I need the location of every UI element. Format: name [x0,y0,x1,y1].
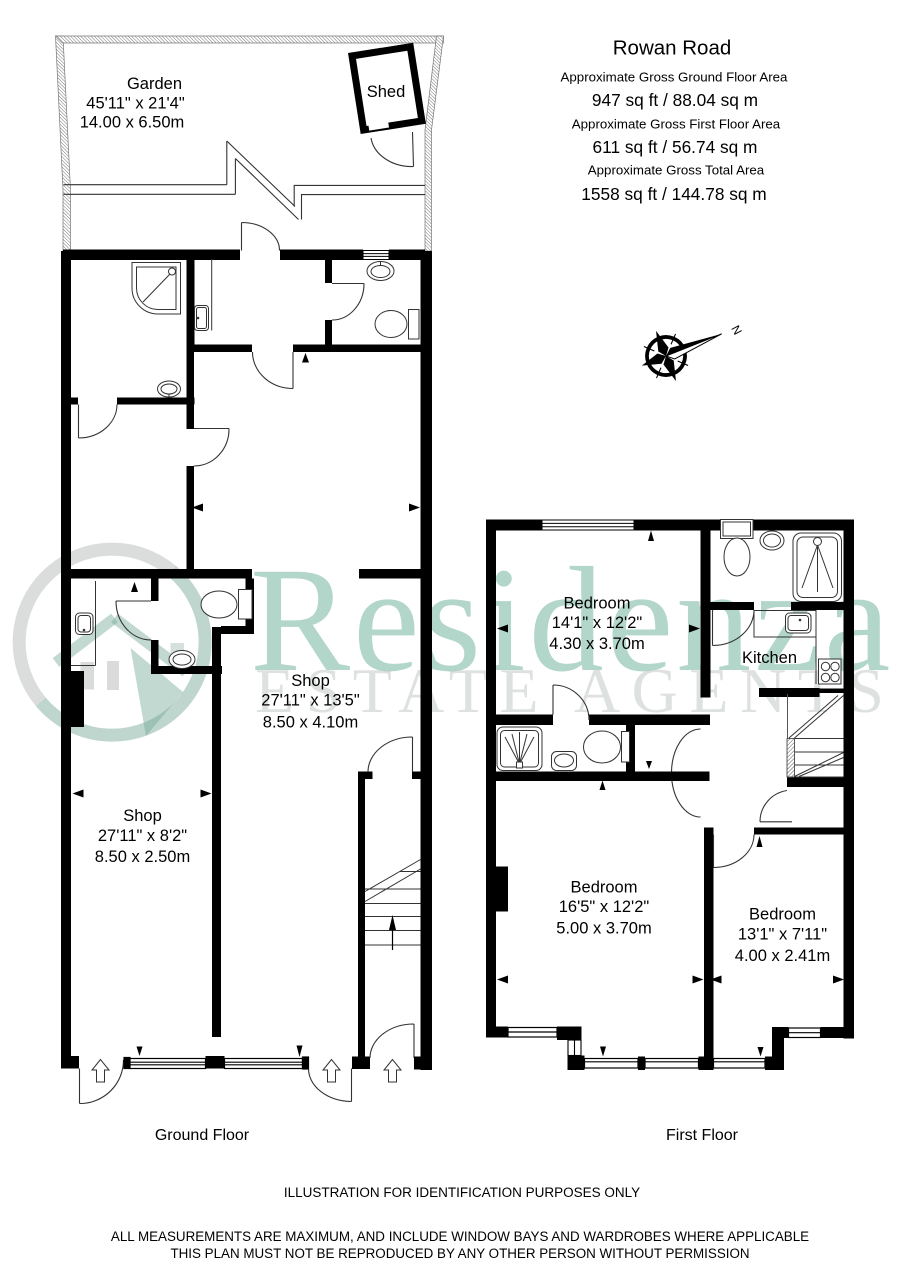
svg-text:Bedroom: Bedroom [571,879,638,897]
svg-text:27'11" x 13'5": 27'11" x 13'5" [261,692,360,710]
svg-text:5.00 x 3.70m: 5.00 x 3.70m [556,920,651,938]
svg-text:Bedroom: Bedroom [564,595,631,613]
svg-text:14.00 x 6.50m: 14.00 x 6.50m [80,114,185,132]
svg-text:1558 sq ft / 144.78 sq m: 1558 sq ft / 144.78 sq m [581,184,766,204]
svg-text:16'5" x 12'2": 16'5" x 12'2" [559,898,650,916]
svg-text:4.00 x 2.41m: 4.00 x 2.41m [735,947,830,965]
svg-text:ALL MEASUREMENTS ARE MAXIMUM,: ALL MEASUREMENTS ARE MAXIMUM, AND INCLUD… [111,1229,809,1244]
svg-text:611 sq ft / 56.74 sq m: 611 sq ft / 56.74 sq m [593,137,758,157]
svg-text:Kitchen: Kitchen [742,649,797,667]
svg-text:45'11" x 21'4": 45'11" x 21'4" [86,95,185,113]
svg-text:ILLUSTRATION FOR IDENTIFICATIO: ILLUSTRATION FOR IDENTIFICATION PURPOSES… [284,1185,640,1200]
svg-text:Approximate Gross Ground Floor: Approximate Gross Ground Floor Area [561,70,788,85]
svg-text:Shop: Shop [291,672,330,690]
svg-text:14'1" x 12'2": 14'1" x 12'2" [552,614,643,632]
svg-text:Garden: Garden [127,75,182,93]
svg-text:4.30 x 3.70m: 4.30 x 3.70m [549,635,644,653]
svg-text:Bedroom: Bedroom [749,906,816,924]
svg-text:8.50 x 2.50m: 8.50 x 2.50m [95,848,190,866]
svg-text:8.50 x 4.10m: 8.50 x 4.10m [263,714,358,732]
svg-text:Approximate Gross Total Area: Approximate Gross Total Area [588,163,765,178]
svg-text:Ground Floor: Ground Floor [155,1127,250,1144]
svg-text:THIS PLAN MUST NOT BE REPRODUC: THIS PLAN MUST NOT BE REPRODUCED BY ANY … [170,1246,749,1261]
svg-text:Shop: Shop [123,807,162,825]
svg-text:13'1" x 7'11": 13'1" x 7'11" [738,926,827,944]
svg-text:Rowan Road: Rowan Road [613,37,732,60]
svg-text:947 sq ft / 88.04 sq m: 947 sq ft / 88.04 sq m [592,90,758,110]
svg-text:27'11" x 8'2": 27'11" x 8'2" [98,827,187,845]
svg-text:Shed: Shed [367,83,406,101]
svg-text:First Floor: First Floor [666,1127,739,1144]
svg-text:Approximate Gross First Floor: Approximate Gross First Floor Area [572,117,781,132]
